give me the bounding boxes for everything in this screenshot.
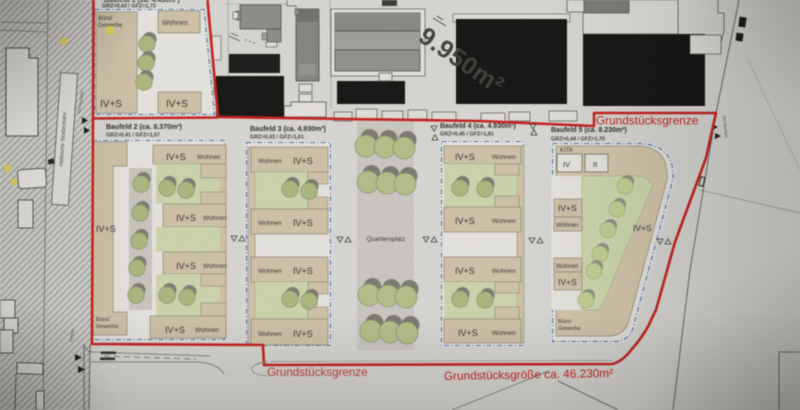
svg-text:Wohnen: Wohnen <box>492 218 516 225</box>
svg-text:Baufeld 2 (ca. 8.370m²): Baufeld 2 (ca. 8.370m²) <box>106 124 182 131</box>
svg-text:IV+S: IV+S <box>455 266 475 276</box>
svg-text:IV+S: IV+S <box>558 277 577 287</box>
svg-text:Wohnen: Wohnen <box>197 154 221 161</box>
svg-text:GRZ=0,45 / GFZ=1,81: GRZ=0,45 / GFZ=1,81 <box>440 132 494 138</box>
svg-text:IV+S: IV+S <box>176 213 196 223</box>
svg-text:Wohnen: Wohnen <box>492 268 516 275</box>
svg-text:Büro/: Büro/ <box>98 16 113 22</box>
svg-text:IV+S: IV+S <box>176 261 196 271</box>
svg-text:IV+S: IV+S <box>166 152 186 162</box>
svg-text:Wohnen: Wohnen <box>492 330 516 337</box>
svg-text:IV+S: IV+S <box>633 223 652 233</box>
svg-text:Wohnen: Wohnen <box>203 263 227 270</box>
svg-text:IV+S: IV+S <box>293 218 313 228</box>
svg-text:IV+S: IV+S <box>458 328 478 338</box>
svg-text:IV+S: IV+S <box>293 266 313 276</box>
svg-text:IV: IV <box>563 160 570 169</box>
svg-text:GRZ=0,43 / GFZ=1,72: GRZ=0,43 / GFZ=1,72 <box>102 4 156 10</box>
svg-text:Wohnen: Wohnen <box>556 223 578 229</box>
svg-text:Gewerbe: Gewerbe <box>558 326 581 332</box>
svg-text:Grundstücksgrenze: Grundstücksgrenze <box>596 114 699 128</box>
svg-text:Wohnen: Wohnen <box>203 215 227 222</box>
svg-text:Baufeld 4 (ca. 4.930m²): Baufeld 4 (ca. 4.930m²) <box>440 123 516 130</box>
svg-text:IV+S: IV+S <box>165 325 185 335</box>
svg-text:Wohnen: Wohnen <box>258 331 282 338</box>
svg-text:Grundstücksgrenze: Grundstücksgrenze <box>267 366 368 379</box>
svg-text:IV+S: IV+S <box>96 224 116 234</box>
svg-text:Wohnen: Wohnen <box>195 327 219 334</box>
svg-text:Wohnen: Wohnen <box>258 158 282 165</box>
svg-text:Wohnen: Wohnen <box>556 264 578 270</box>
svg-text:Baufeld 5 (ca. 8.230m²): Baufeld 5 (ca. 8.230m²) <box>551 127 627 134</box>
svg-text:Büro/: Büro/ <box>558 319 572 325</box>
svg-text:IV+S: IV+S <box>558 203 577 213</box>
svg-text:KITA: KITA <box>560 148 573 154</box>
svg-text:Grundstücksgröße ca. 46.230m²: Grundstücksgröße ca. 46.230m² <box>444 366 613 383</box>
svg-text:IV+S: IV+S <box>293 156 313 166</box>
svg-text:Büro/: Büro/ <box>96 317 110 323</box>
svg-text:IV+S: IV+S <box>100 99 122 110</box>
svg-text:IV+S: IV+S <box>166 99 188 110</box>
svg-text:Wohnen: Wohnen <box>258 268 282 275</box>
svg-text:Baufeld 3 (ca. 4.930m²): Baufeld 3 (ca. 4.930m²) <box>250 126 326 133</box>
svg-text:GRZ=0,41 / GFZ=1,67: GRZ=0,41 / GFZ=1,67 <box>106 133 160 139</box>
svg-text:Wohnen: Wohnen <box>162 20 188 27</box>
svg-text:GRZ=0,44 / GFZ=1,70: GRZ=0,44 / GFZ=1,70 <box>551 137 605 143</box>
svg-text:Quartiersplatz: Quartiersplatz <box>367 236 406 243</box>
svg-text:GRZ=0,43 / GFZ=1,61: GRZ=0,43 / GFZ=1,61 <box>250 135 304 141</box>
svg-text:IV+S: IV+S <box>455 216 475 226</box>
svg-text:Wohnen: Wohnen <box>492 154 516 161</box>
svg-text:IV+S: IV+S <box>455 152 475 162</box>
svg-text:IV+S: IV+S <box>293 329 313 339</box>
svg-text:Wohnen: Wohnen <box>258 220 282 227</box>
svg-text:II: II <box>593 160 597 169</box>
svg-text:Gewerbe: Gewerbe <box>96 324 119 330</box>
